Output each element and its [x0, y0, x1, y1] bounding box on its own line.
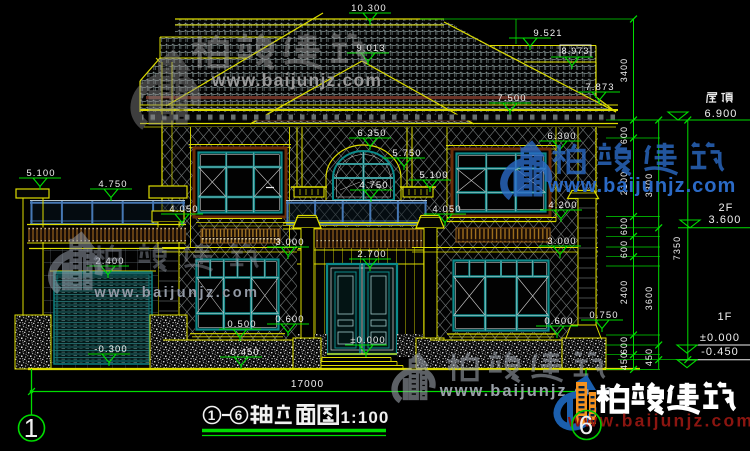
- svg-text:4.200: 4.200: [548, 200, 577, 211]
- svg-text:±0.000: ±0.000: [700, 332, 740, 344]
- svg-text:1: 1: [24, 413, 40, 443]
- svg-text:5.750: 5.750: [392, 148, 421, 159]
- svg-text:6.350: 6.350: [357, 128, 386, 139]
- svg-text:2.700: 2.700: [357, 249, 386, 260]
- svg-text:6.300: 6.300: [547, 131, 576, 142]
- svg-text:17000: 17000: [291, 379, 324, 390]
- svg-text:3.000: 3.000: [275, 237, 304, 248]
- svg-text:9.521: 9.521: [533, 28, 562, 39]
- svg-text:-0.450: -0.450: [226, 347, 260, 358]
- svg-text:450: 450: [644, 348, 654, 366]
- svg-text:7.873: 7.873: [585, 82, 614, 93]
- svg-text:4.750: 4.750: [359, 180, 388, 191]
- svg-text:6: 6: [579, 410, 595, 440]
- svg-text:450: 450: [619, 352, 629, 370]
- svg-text:600: 600: [619, 336, 629, 354]
- svg-text:1:100: 1:100: [341, 408, 390, 427]
- svg-text:www.baijunjz.com: www.baijunjz.com: [547, 175, 737, 197]
- svg-text:0.500: 0.500: [227, 319, 256, 330]
- svg-text:www.baijunjz.com: www.baijunjz.com: [93, 285, 259, 301]
- svg-text:3.000: 3.000: [547, 236, 576, 247]
- svg-text:4.750: 4.750: [98, 179, 127, 190]
- svg-text:7.500: 7.500: [497, 93, 526, 104]
- svg-text:4.050: 4.050: [432, 204, 461, 215]
- svg-text:600: 600: [619, 217, 629, 235]
- svg-text:6: 6: [235, 408, 244, 423]
- svg-text:2F: 2F: [718, 202, 733, 214]
- svg-text:-0.450: -0.450: [701, 346, 739, 358]
- svg-text:0.750: 0.750: [589, 310, 618, 321]
- svg-text:0.600: 0.600: [275, 314, 304, 325]
- svg-text:8.973: 8.973: [561, 46, 589, 56]
- svg-text:3.600: 3.600: [708, 214, 741, 226]
- svg-text:1: 1: [208, 408, 217, 423]
- svg-text:3400: 3400: [619, 58, 629, 82]
- svg-text:www.baijunjz.com: www.baijunjz.com: [211, 70, 382, 90]
- svg-text:4.050: 4.050: [169, 204, 198, 215]
- svg-text:6.900: 6.900: [704, 108, 737, 120]
- svg-text:600: 600: [619, 126, 629, 144]
- svg-text:-0.300: -0.300: [94, 344, 128, 355]
- svg-text:7350: 7350: [672, 236, 682, 260]
- svg-text:3600: 3600: [644, 286, 654, 310]
- svg-text:5.100: 5.100: [419, 170, 448, 181]
- svg-text:600: 600: [619, 240, 629, 258]
- svg-text:0.600: 0.600: [544, 316, 573, 327]
- svg-text:5.100: 5.100: [26, 168, 55, 179]
- svg-text:±0.000: ±0.000: [350, 335, 386, 346]
- svg-text:2400: 2400: [619, 280, 629, 304]
- svg-text:1F: 1F: [717, 311, 732, 323]
- svg-text:10.300: 10.300: [351, 3, 387, 14]
